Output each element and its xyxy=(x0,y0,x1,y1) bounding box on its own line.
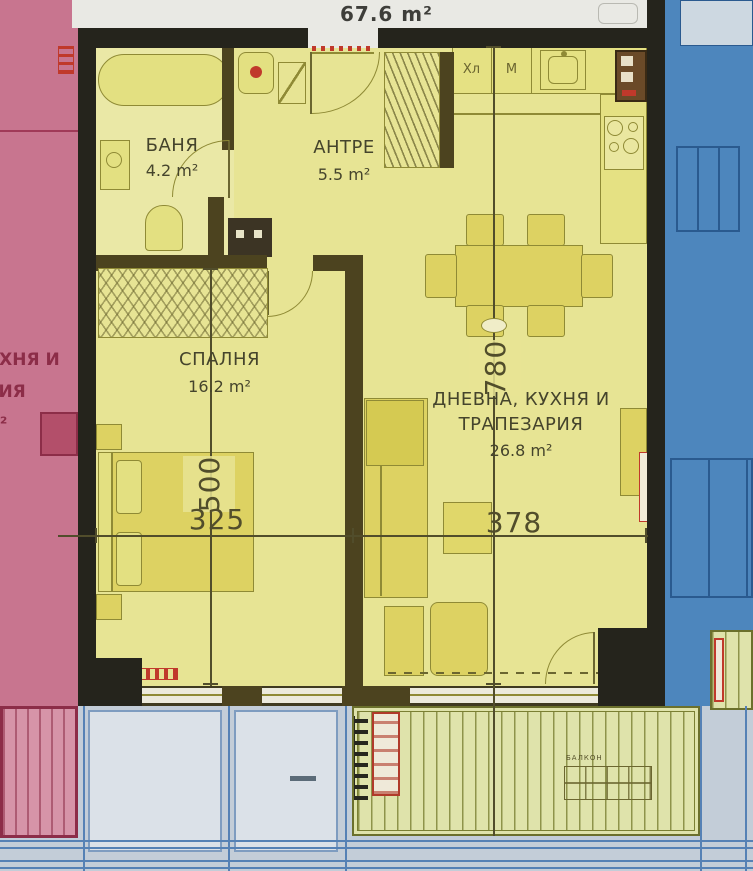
dim-tick xyxy=(352,528,354,543)
neighbor-left-label-3: м² xyxy=(0,414,7,434)
wall-bathroom-right xyxy=(222,44,234,150)
dim-tick xyxy=(645,528,647,543)
pedestal-sink xyxy=(145,205,183,251)
balcony-schedule-table xyxy=(564,766,652,800)
dining-chair xyxy=(581,254,613,298)
dim-label-780: 780 xyxy=(469,340,521,396)
nightstand xyxy=(96,594,122,620)
neighbor-left-label-2: РИЯ xyxy=(0,382,26,402)
washer-label: М xyxy=(506,63,517,78)
window-mullion xyxy=(410,694,598,696)
lower-level-mark xyxy=(290,776,316,781)
vent-red-mark xyxy=(622,90,636,96)
shoe-cabinet-notch xyxy=(254,230,262,238)
wall-pier xyxy=(222,686,262,706)
lower-level-panel-b xyxy=(234,710,338,852)
side-table xyxy=(384,606,424,676)
ceiling-lamp xyxy=(481,318,507,333)
neighbor-right-heater xyxy=(714,638,724,702)
neighbor-left-balcony xyxy=(0,706,78,838)
kitchen-sink-bowl xyxy=(548,56,578,84)
cooktop-burner xyxy=(609,142,619,152)
pillow xyxy=(116,532,142,586)
bed-headboard xyxy=(98,452,112,592)
floor-plan: УХНЯ И РИЯ м² 67.6 m² БАЛКОН Хл М xyxy=(0,0,753,871)
dining-chair xyxy=(466,214,504,246)
entrance-opening xyxy=(308,28,378,48)
fridge-cell: Хл xyxy=(452,46,492,94)
corner-sink xyxy=(278,62,306,104)
bathtub xyxy=(98,54,230,106)
living-area: 26.8 m² xyxy=(432,442,610,460)
dim-label-378: 378 xyxy=(478,506,550,536)
living-name-line1: ДНЕВНА, КУХНЯ И xyxy=(432,390,610,411)
dim-label-325: 325 xyxy=(181,503,253,533)
washer-cell: М xyxy=(492,46,532,94)
grid-line xyxy=(0,847,753,849)
neighbor-right-wardrobe xyxy=(676,146,740,232)
vent-notch xyxy=(621,56,633,66)
dining-chair xyxy=(527,214,565,246)
window-mullion xyxy=(262,694,342,696)
window-mullion xyxy=(142,694,222,696)
dining-table xyxy=(455,245,583,307)
balcony-ladder xyxy=(354,716,368,800)
bathroom-name: БАНЯ xyxy=(118,136,226,157)
vent-notch xyxy=(621,72,633,82)
wall-corner-bottom-left xyxy=(78,658,142,706)
wall-partition-living xyxy=(345,255,363,686)
dim-tick xyxy=(486,46,501,48)
grid-line xyxy=(0,867,753,869)
armchair xyxy=(430,602,488,676)
dim-tick xyxy=(203,683,218,685)
fridge-label: Хл xyxy=(463,63,480,78)
neighbor-left-label-1: УХНЯ И xyxy=(0,350,60,370)
wall-stub-wardrobe xyxy=(440,52,454,168)
cooktop-burner xyxy=(628,122,638,132)
grid-line xyxy=(0,860,753,862)
hall-wardrobe xyxy=(384,52,440,168)
dining-chair xyxy=(425,254,457,298)
dim-780-text: 780 xyxy=(479,340,512,396)
toilet-flush-button xyxy=(250,66,262,78)
bedroom-area: 16.2 m² xyxy=(162,378,277,396)
wall-left xyxy=(78,28,96,706)
wall-bathroom-corner xyxy=(208,197,224,258)
dim-tick xyxy=(95,528,97,543)
cooktop-burner xyxy=(607,120,623,136)
grid-line xyxy=(0,840,753,842)
wall-pier-partition xyxy=(342,686,410,706)
upper-plan-sink-sketch xyxy=(598,3,638,24)
bedroom-name: СПАЛНЯ xyxy=(162,350,277,371)
lower-level-panel-a xyxy=(88,710,222,852)
hall-shoe-cabinet xyxy=(228,218,272,257)
neighbor-right-room xyxy=(680,0,753,46)
neighbor-right-bed xyxy=(670,458,753,598)
sofa-chaise xyxy=(366,400,424,466)
bathroom-area: 4.2 m² xyxy=(118,162,226,180)
entrance-threshold xyxy=(312,46,374,51)
nightstand xyxy=(96,424,122,450)
balcony-heater xyxy=(372,712,400,796)
living-name-line2: ТРАПЕЗАРИЯ xyxy=(432,415,610,436)
hall-area: 5.5 m² xyxy=(298,166,390,184)
neighbor-apartment-right xyxy=(665,0,753,706)
neighbor-left-radiator xyxy=(58,46,74,74)
hall-name: АНТРЕ xyxy=(296,138,392,159)
cooktop-burner xyxy=(623,138,639,154)
shoe-cabinet-notch xyxy=(236,230,244,238)
dim-tick xyxy=(203,268,218,270)
pillow xyxy=(116,460,142,514)
dim-tick xyxy=(486,683,501,685)
balcony-label: БАЛКОН xyxy=(566,754,603,762)
total-area-label: 67.6 m² xyxy=(340,2,433,26)
bedroom-wardrobe xyxy=(98,268,268,338)
dining-chair xyxy=(527,305,565,337)
kitchen-faucet xyxy=(561,51,567,57)
wall-corner-bottom-right xyxy=(598,628,665,706)
neighbor-left-furniture xyxy=(40,412,78,456)
balcony-door-leaf xyxy=(593,632,595,684)
neighbor-left-wall-line xyxy=(0,130,78,132)
wall-right xyxy=(647,0,665,706)
